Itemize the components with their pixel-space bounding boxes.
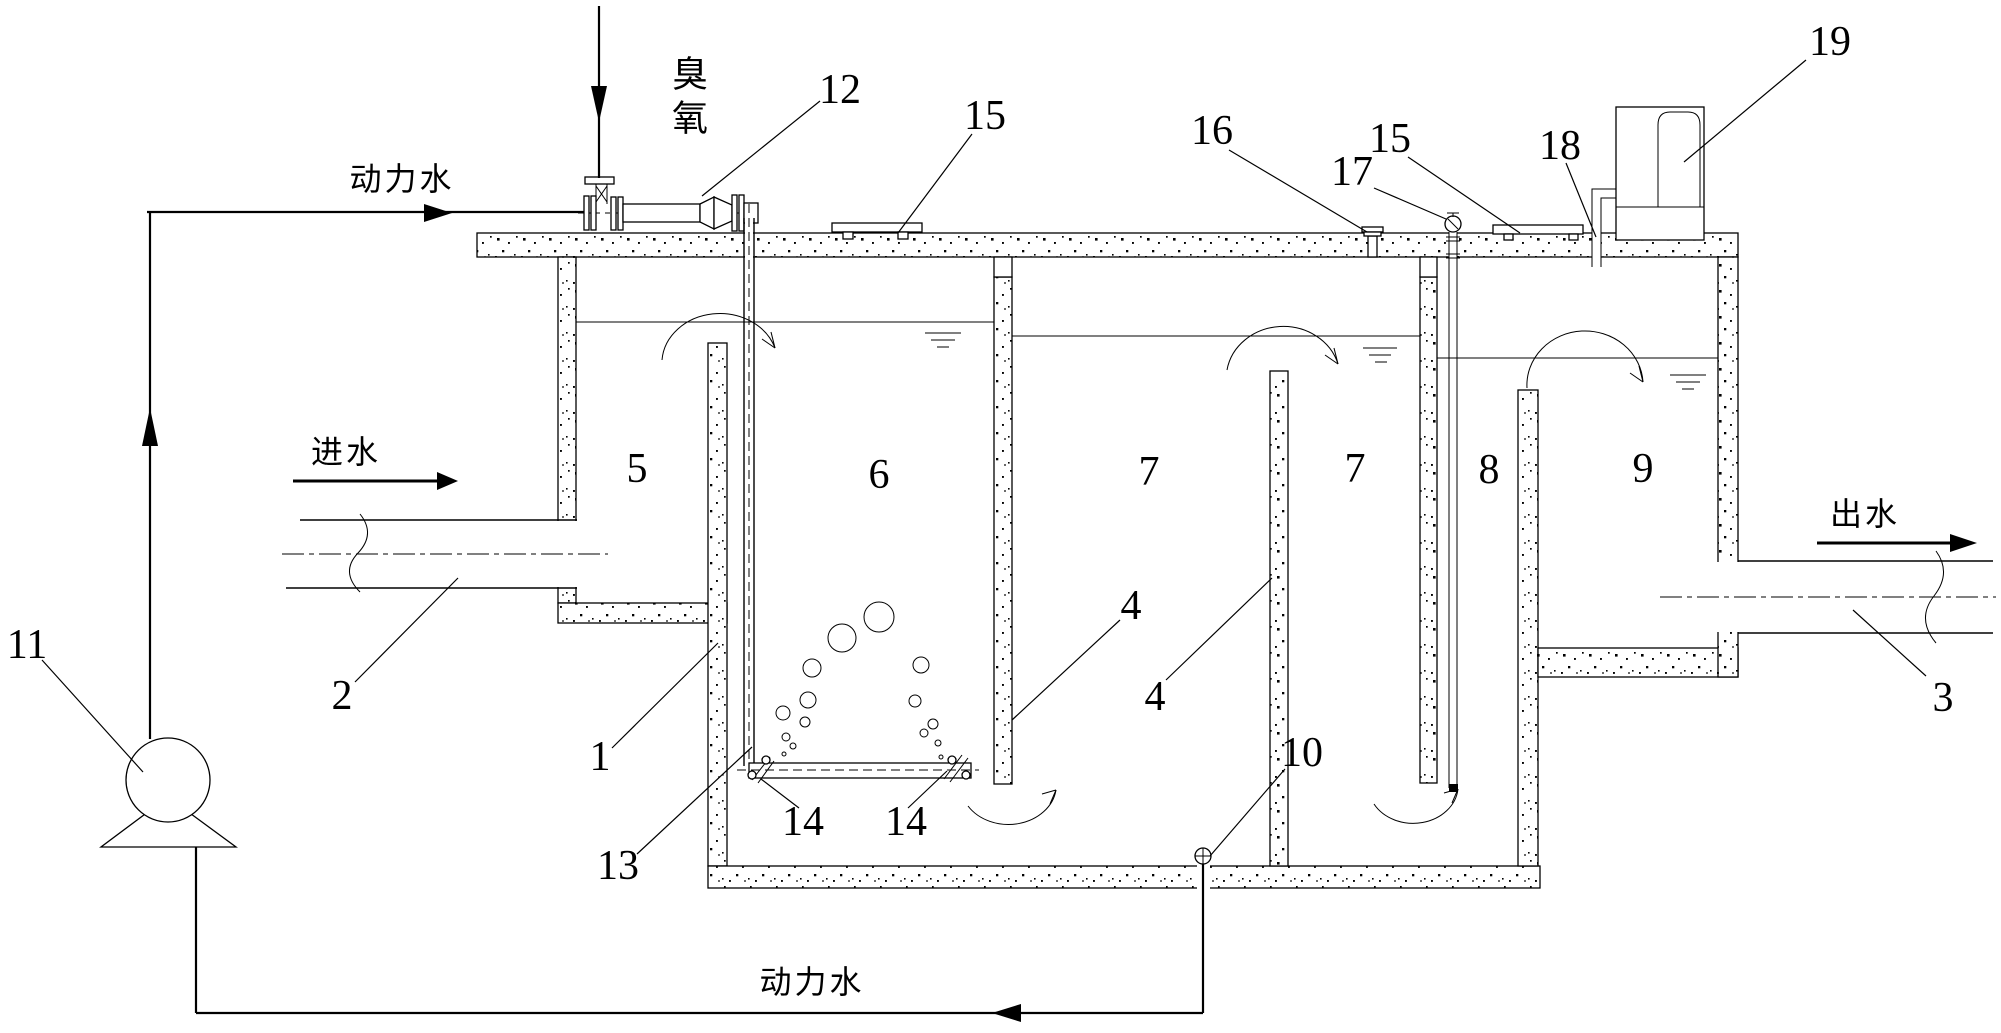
inlet-arrow-icon xyxy=(437,472,458,490)
tank-structure xyxy=(477,233,1740,889)
bubble xyxy=(864,602,894,632)
flow-arrow-left-icon xyxy=(992,1004,1021,1022)
tank-diagram-svg xyxy=(0,0,2001,1033)
mixed-water-downpipe xyxy=(744,204,754,766)
weir-wall-8-9 xyxy=(1518,390,1538,866)
leader-4a xyxy=(1012,620,1120,720)
level-symbol xyxy=(1670,375,1706,389)
leader-17 xyxy=(1374,188,1446,219)
ozone-tee-flange xyxy=(585,177,614,184)
outlet-arrow-icon xyxy=(1950,534,1977,552)
part-label-1: 1 xyxy=(590,736,611,778)
manhole-foot xyxy=(1569,234,1578,240)
bubble xyxy=(782,733,790,741)
ozone-arrow-icon xyxy=(591,86,607,122)
raised-floor-9 xyxy=(1538,648,1738,677)
bubble xyxy=(800,717,810,727)
part-label-18: 18 xyxy=(1539,125,1581,167)
bubble xyxy=(909,695,921,707)
roof-slab xyxy=(477,233,1738,257)
part-label-10: 10 xyxy=(1281,732,1323,774)
destructor-housing xyxy=(1616,107,1704,240)
bubble xyxy=(776,706,790,720)
part-label-16: 16 xyxy=(1191,110,1233,152)
level-symbol xyxy=(925,333,961,347)
flow-arc-under-baffle-7-8 xyxy=(1374,789,1458,823)
baffle-stub-7-8 xyxy=(1420,257,1437,277)
chamber-label-7b: 7 xyxy=(1345,448,1366,490)
bubble xyxy=(828,624,856,652)
arrowhead xyxy=(1042,790,1056,794)
leader-3 xyxy=(1853,610,1926,676)
sampling-pipe-core xyxy=(1449,232,1457,788)
part-label-2: 2 xyxy=(332,675,353,717)
chamber-label-8: 8 xyxy=(1479,449,1500,491)
flow-arrow-right-icon xyxy=(424,204,452,222)
weir-baffle-7-7 xyxy=(1270,371,1288,866)
hanging-baffle-7-8 xyxy=(1420,277,1437,783)
flange xyxy=(591,196,596,230)
flow-arc-over-weir-7-7 xyxy=(1227,326,1338,370)
baffle-stub-6-7 xyxy=(994,257,1012,277)
leader-11 xyxy=(42,660,143,772)
leader-2 xyxy=(355,578,458,682)
flange xyxy=(584,196,589,230)
flow-arc-under-baffle-6-7 xyxy=(968,790,1056,824)
sampling-pipe xyxy=(1445,213,1461,792)
ozone-label: 臭氧 xyxy=(668,55,704,143)
bubble-plume xyxy=(776,602,943,759)
port-cap xyxy=(1364,232,1381,236)
part-label-4b: 4 xyxy=(1145,676,1166,718)
manhole-foot xyxy=(898,232,908,239)
part-label-4a: 4 xyxy=(1121,585,1142,627)
flow-arrows xyxy=(662,314,1643,825)
destructor-unit xyxy=(1616,107,1704,240)
manhole-foot xyxy=(843,232,853,239)
outlet-pipe xyxy=(1660,551,1996,643)
port-neck xyxy=(1368,236,1377,257)
weir-wall-5-6 xyxy=(708,343,727,866)
manhole-plate xyxy=(832,223,922,232)
diffuser-orifice xyxy=(962,771,970,779)
bubble xyxy=(935,740,941,746)
diffuser-orifice xyxy=(762,756,770,764)
leader-4b xyxy=(1166,578,1272,680)
bubble xyxy=(790,743,796,749)
part-label-12: 12 xyxy=(819,69,861,111)
bubble xyxy=(803,659,821,677)
leader-1 xyxy=(612,643,718,748)
venturi-pipe-body xyxy=(623,204,700,222)
flange xyxy=(739,195,744,231)
manhole-foot xyxy=(1504,234,1513,240)
part-label-15b: 15 xyxy=(1369,118,1411,160)
manhole-plate xyxy=(1493,225,1583,234)
venturi-injector xyxy=(578,177,758,231)
chamber-label-9: 9 xyxy=(1633,448,1654,490)
part-label-14a: 14 xyxy=(782,801,824,843)
bubble xyxy=(800,692,816,708)
leader-13 xyxy=(637,747,752,854)
leader-12 xyxy=(702,101,820,196)
bubble xyxy=(782,752,786,756)
flange xyxy=(611,197,616,230)
diagram-canvas: 臭氧 动力水 动力水 进水 出水 1 2 3 4 4 5 6 7 7 8 9 1… xyxy=(0,0,2001,1033)
part-label-13: 13 xyxy=(597,845,639,887)
part-label-15a: 15 xyxy=(964,95,1006,137)
bubble xyxy=(913,657,929,673)
inlet-pipe-break xyxy=(349,514,367,592)
bubble xyxy=(928,719,938,729)
chamber-label-5: 5 xyxy=(627,448,648,490)
leader-15a xyxy=(898,134,972,233)
bubble xyxy=(939,755,943,759)
diffuser xyxy=(737,755,979,783)
part-label-19: 19 xyxy=(1809,21,1851,63)
flange xyxy=(618,197,623,230)
venturi-expander xyxy=(700,197,714,229)
part-label-14b: 14 xyxy=(885,801,927,843)
leader-15b xyxy=(1408,157,1520,233)
part-label-17: 17 xyxy=(1331,151,1373,193)
chamber-label-6: 6 xyxy=(869,454,890,496)
inlet-water-label: 进水 xyxy=(311,436,381,468)
hanging-baffle-6-7 xyxy=(994,277,1012,784)
outlet-water-label: 出水 xyxy=(1830,498,1900,530)
part-label-11: 11 xyxy=(7,624,47,666)
bubble xyxy=(920,729,928,737)
exhaust-pipe-core xyxy=(1592,190,1601,266)
venturi-cone xyxy=(714,197,732,229)
power-water-label-top: 动力水 xyxy=(349,163,454,195)
flow-arrow-up-icon xyxy=(142,408,158,446)
diffuser-orifice xyxy=(748,771,756,779)
flange xyxy=(732,195,737,231)
pump-body xyxy=(126,738,210,822)
arrowhead xyxy=(1050,790,1056,804)
level-symbol xyxy=(1363,348,1397,362)
deep-floor-slab xyxy=(708,866,1540,888)
flow-arc-over-weir-8-9 xyxy=(1527,331,1643,388)
part-label-3: 3 xyxy=(1933,677,1954,719)
power-water-label-bottom: 动力水 xyxy=(759,966,864,998)
chamber-label-7a: 7 xyxy=(1139,451,1160,493)
inlet-chamber-floor xyxy=(558,603,727,623)
diffuser-orifice xyxy=(948,756,956,764)
ozone-feed xyxy=(591,6,607,178)
